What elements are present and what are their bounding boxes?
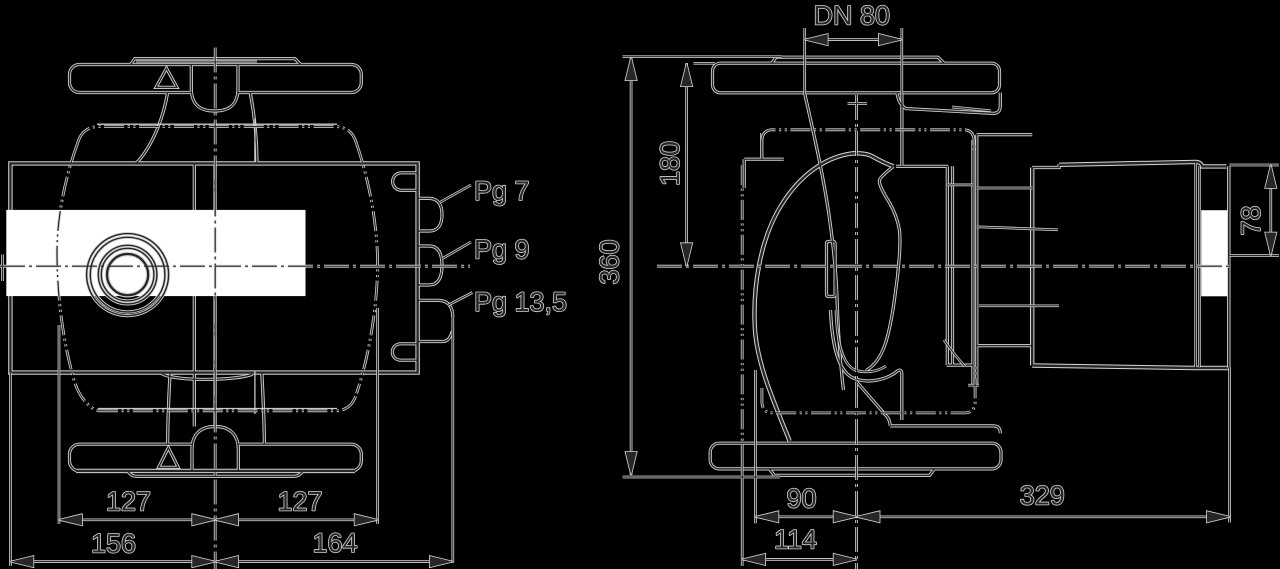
svg-text:DN 80: DN 80: [814, 0, 891, 30]
svg-text:Pg 7: Pg 7: [474, 176, 530, 206]
svg-text:114: 114: [774, 524, 817, 554]
svg-text:90: 90: [786, 484, 816, 514]
svg-text:Pg 13,5: Pg 13,5: [474, 287, 567, 317]
svg-text:360: 360: [595, 239, 625, 284]
svg-text:78: 78: [1236, 205, 1266, 235]
svg-text:164: 164: [312, 528, 357, 558]
svg-text:127: 127: [106, 487, 151, 517]
svg-text:180: 180: [655, 141, 685, 186]
svg-text:127: 127: [277, 487, 322, 517]
svg-text:329: 329: [1020, 481, 1065, 511]
svg-text:156: 156: [91, 529, 136, 559]
svg-text:Pg 9: Pg 9: [474, 234, 530, 264]
